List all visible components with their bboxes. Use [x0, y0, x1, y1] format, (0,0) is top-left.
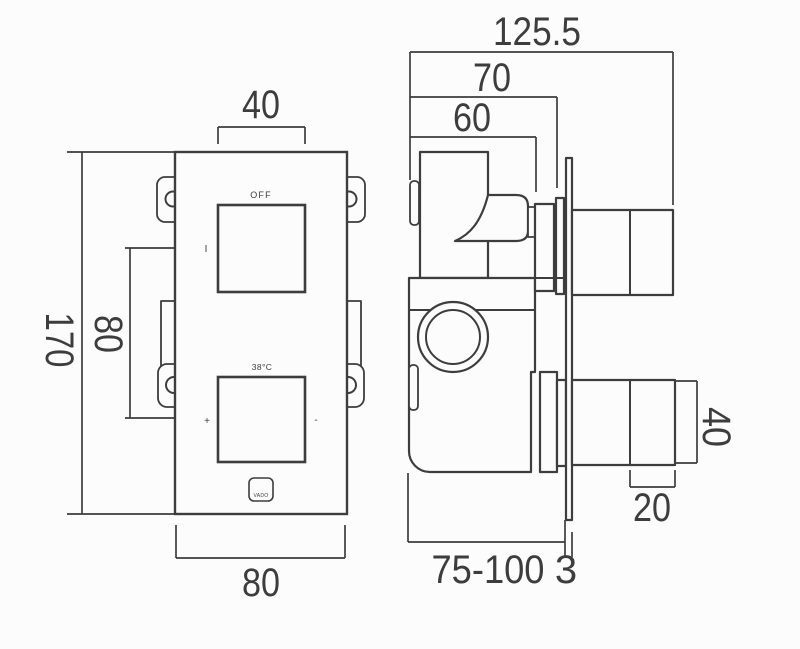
dim-80b-text: 80 — [242, 561, 280, 605]
dim-40t-text: 40 — [242, 83, 280, 127]
front-view: OFF I 38°C + - VADO 170 80 40 — [37, 83, 365, 605]
label-on-mark: I — [205, 244, 208, 255]
dim-60-text: 60 — [453, 96, 491, 140]
dim-knob-height: 40 — [676, 381, 738, 463]
dim-3-text: 3 — [555, 548, 577, 592]
dim-1255-text: 125.5 — [493, 10, 581, 54]
label-minus: - — [314, 415, 317, 426]
spacer-lower — [557, 380, 566, 466]
temperature-handle-square — [218, 377, 305, 462]
diverter-handle-square — [218, 205, 305, 292]
vado-logo-text: VADO — [254, 493, 269, 499]
dim-20-text: 20 — [633, 486, 671, 530]
rear-tab-lower — [409, 365, 418, 410]
knob-lower-side — [572, 380, 675, 465]
valve-technical-drawing: OFF I 38°C + - VADO 170 80 40 — [0, 0, 800, 649]
dim-bottom-width: 80 — [176, 525, 345, 605]
dim-40k-text: 40 — [694, 407, 738, 447]
dim-knob-depth: 20 — [630, 470, 675, 530]
body-upper-section — [420, 152, 488, 278]
dim-75100-text: 75-100 — [432, 548, 545, 592]
inlet-port-outer — [418, 302, 488, 372]
spacer-upper — [556, 198, 564, 294]
dim-top-width: 40 — [218, 83, 305, 144]
technical-drawing-page: OFF I 38°C + - VADO 170 80 40 — [0, 0, 800, 649]
label-plus: + — [204, 416, 210, 427]
dim-installation-depth: 75-100 — [408, 473, 565, 592]
cartridge-lower — [540, 372, 557, 472]
knob-upper-side — [572, 210, 673, 295]
side-view: 125.5 70 60 40 20 — [408, 10, 738, 592]
dim-170-text: 170 — [37, 313, 81, 368]
dim-plate-thickness: 3 — [555, 532, 577, 592]
label-off: OFF — [250, 190, 272, 200]
label-temperature: 38°C — [252, 362, 273, 372]
dim-80c-text: 80 — [86, 315, 130, 353]
dim-70-text: 70 — [473, 56, 511, 100]
rear-tab-upper — [410, 181, 419, 225]
